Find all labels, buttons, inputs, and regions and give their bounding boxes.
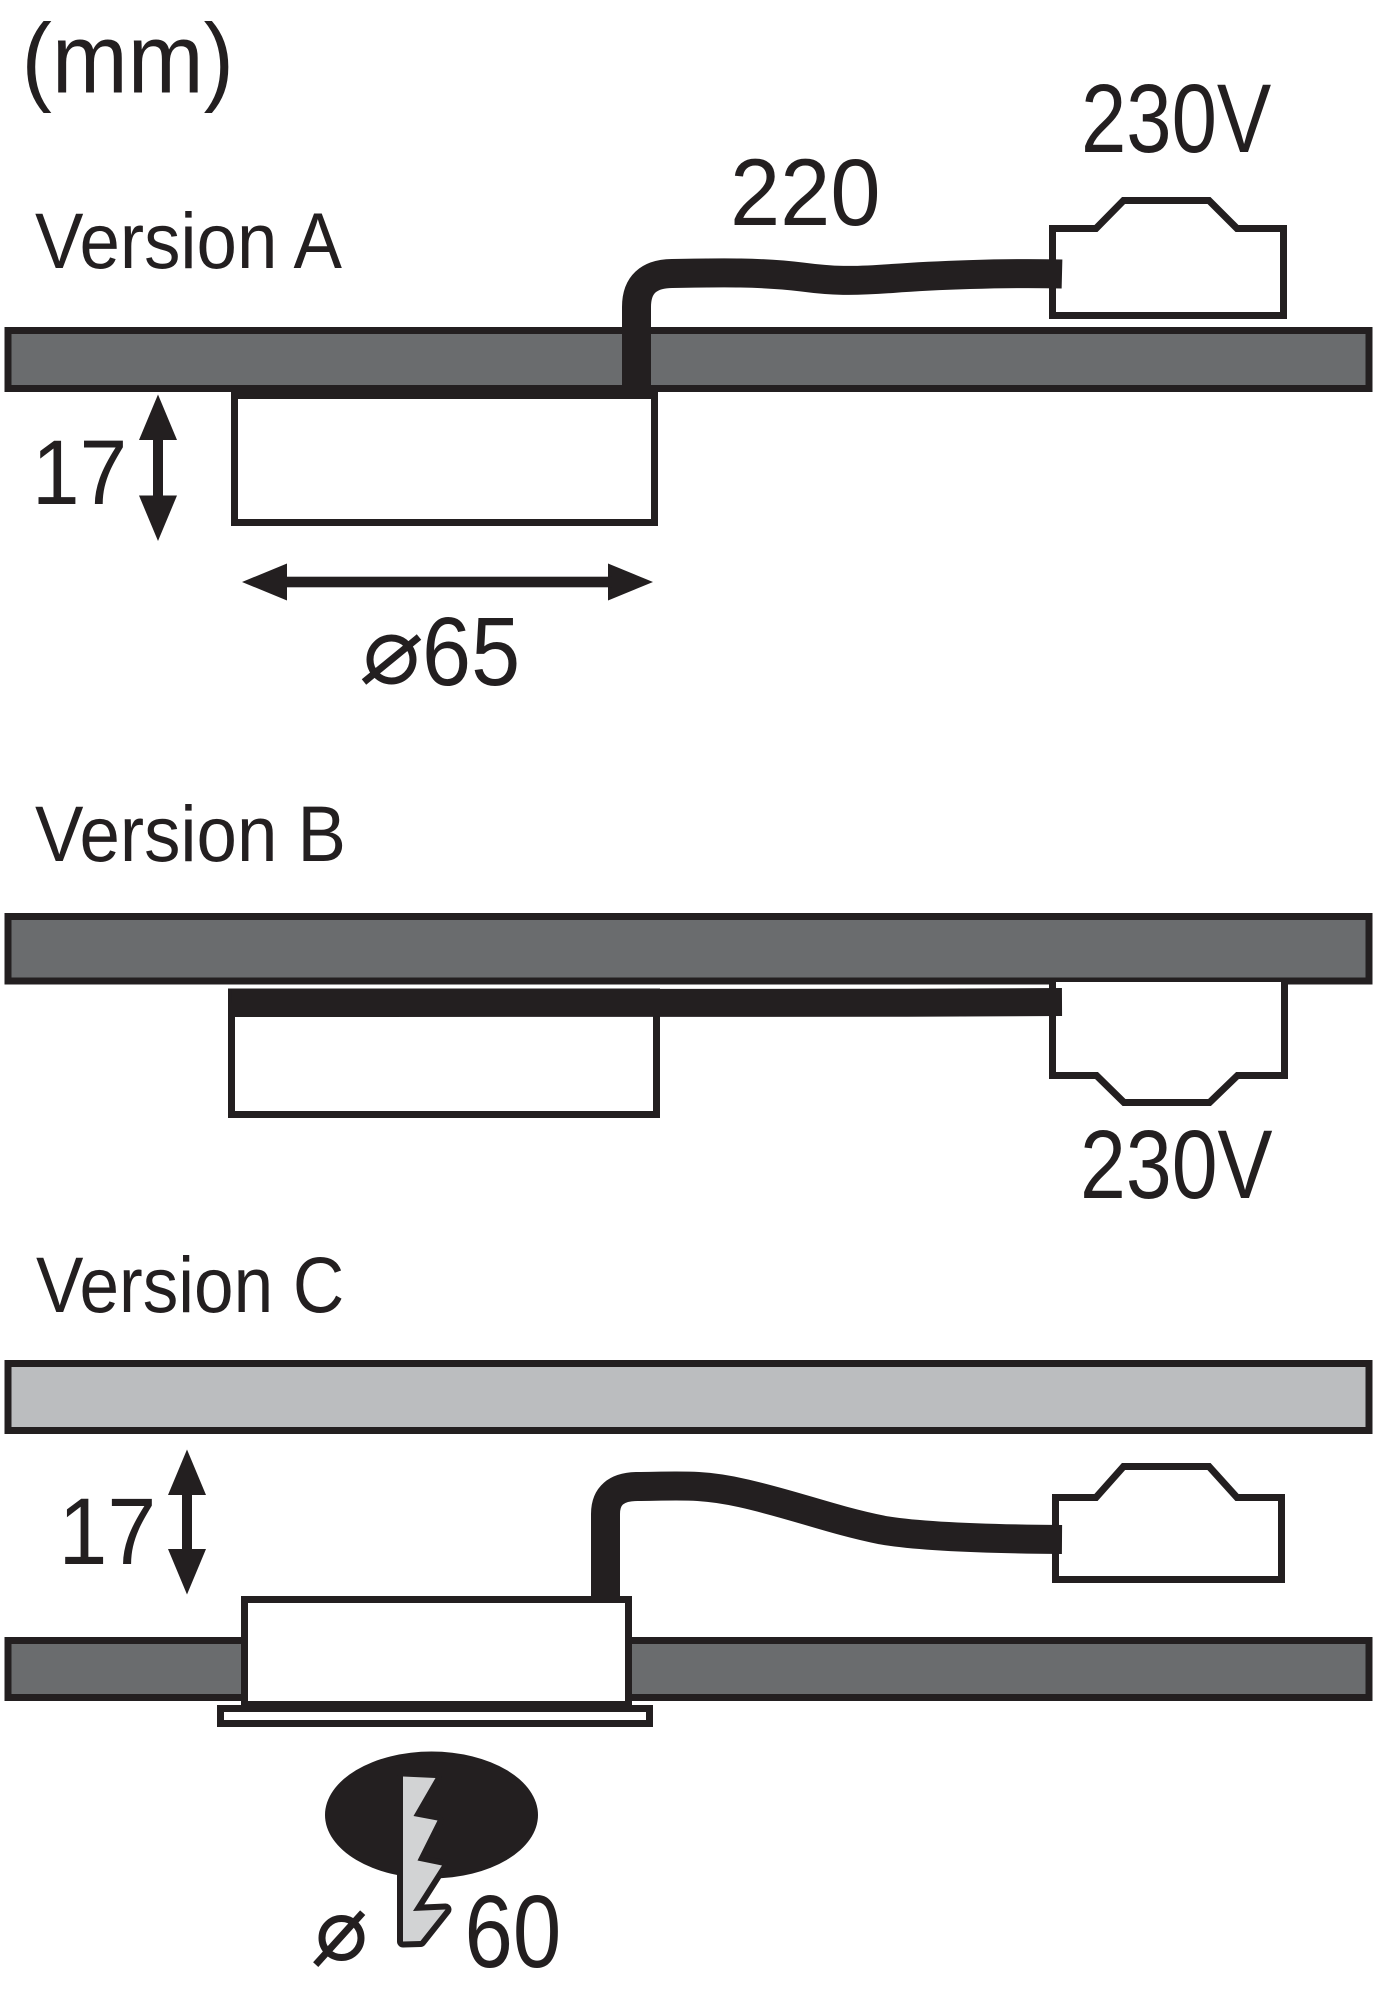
svg-text:17: 17 [59, 1479, 157, 1585]
svg-text:60: 60 [465, 1875, 562, 1990]
svg-text:Version C: Version C [36, 1241, 344, 1329]
svg-text:230V: 230V [1080, 1112, 1273, 1220]
svg-text:65: 65 [422, 597, 520, 706]
svg-text:17: 17 [32, 421, 127, 524]
svg-text:230V: 230V [1081, 64, 1272, 172]
svg-text:Version A: Version A [35, 197, 342, 285]
svg-text:(mm): (mm) [22, 4, 235, 114]
svg-text:Version B: Version B [35, 790, 346, 878]
svg-text:220: 220 [730, 139, 881, 246]
